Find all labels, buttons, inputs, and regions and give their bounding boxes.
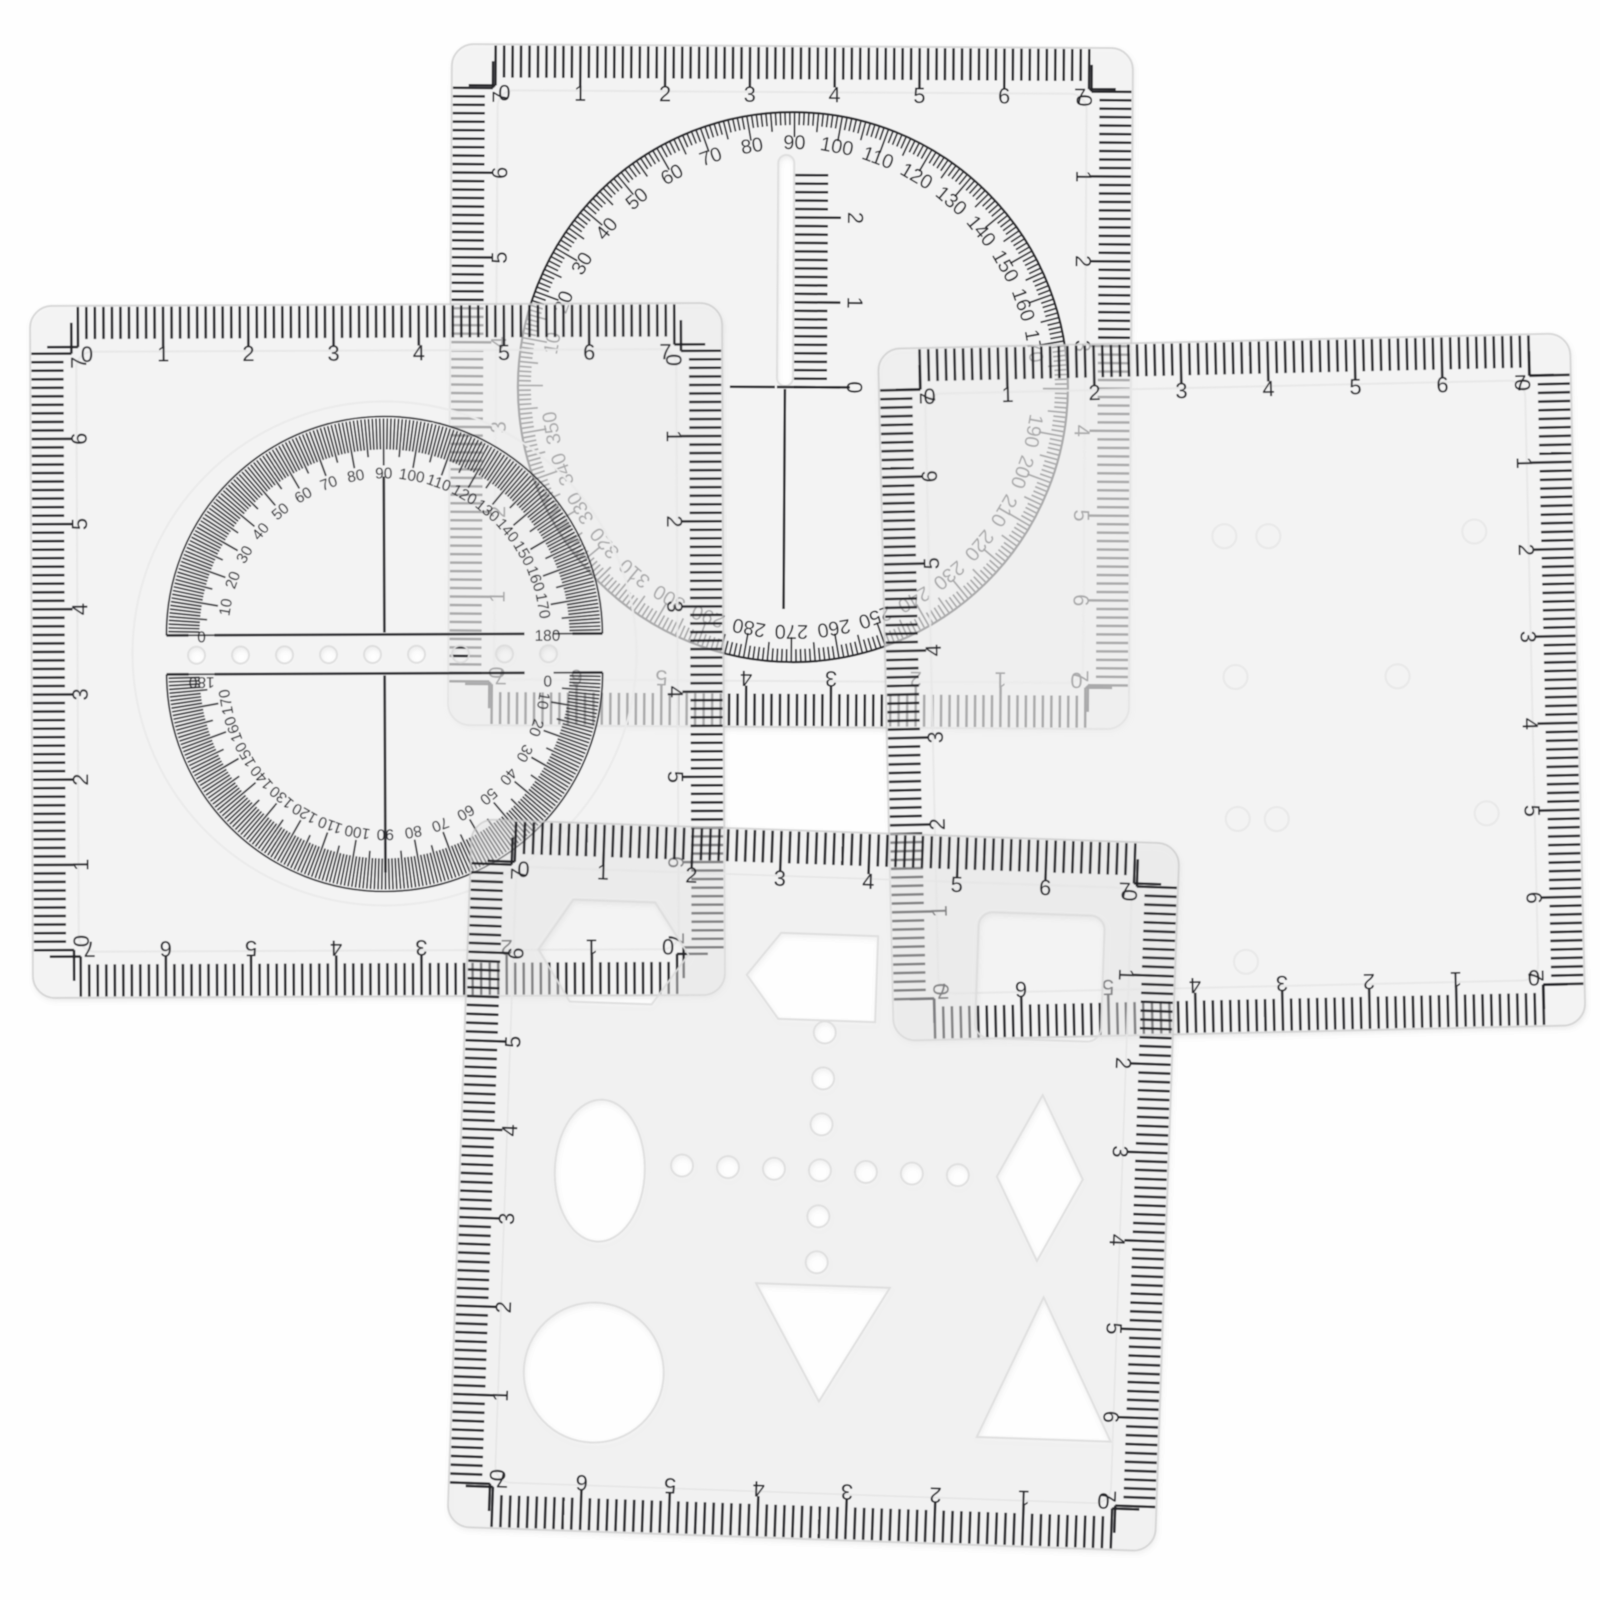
svg-text:4: 4 <box>921 644 946 657</box>
svg-text:4: 4 <box>67 603 92 615</box>
svg-text:5: 5 <box>950 872 963 897</box>
svg-text:6: 6 <box>917 470 942 483</box>
svg-text:5: 5 <box>663 1473 676 1498</box>
svg-text:4: 4 <box>1104 1233 1129 1246</box>
svg-text:3: 3 <box>825 666 837 691</box>
svg-text:6: 6 <box>575 1470 588 1495</box>
svg-text:80: 80 <box>346 467 366 487</box>
svg-text:5: 5 <box>913 83 925 108</box>
svg-text:2: 2 <box>491 1301 516 1314</box>
svg-text:0: 0 <box>543 672 552 689</box>
svg-text:1: 1 <box>1071 170 1096 182</box>
svg-text:1: 1 <box>68 859 93 871</box>
svg-text:6: 6 <box>1015 977 1028 1002</box>
svg-text:7: 7 <box>506 867 531 880</box>
svg-text:3: 3 <box>923 731 948 744</box>
svg-text:6: 6 <box>998 83 1010 108</box>
svg-text:10: 10 <box>533 691 553 711</box>
svg-text:5: 5 <box>487 251 512 263</box>
svg-text:0: 0 <box>1097 1488 1110 1513</box>
svg-text:2: 2 <box>1071 255 1096 267</box>
svg-text:2: 2 <box>1111 1057 1136 1070</box>
svg-text:2: 2 <box>242 341 254 366</box>
svg-text:0: 0 <box>1528 965 1541 990</box>
svg-text:80: 80 <box>739 134 765 159</box>
svg-text:2: 2 <box>68 773 93 785</box>
svg-text:1: 1 <box>1114 968 1139 981</box>
svg-text:80: 80 <box>403 821 423 841</box>
svg-text:4: 4 <box>752 1476 765 1501</box>
svg-text:3: 3 <box>773 866 786 891</box>
svg-text:4: 4 <box>1189 973 1202 998</box>
svg-text:5: 5 <box>67 518 92 530</box>
svg-text:2: 2 <box>662 515 687 527</box>
svg-text:180: 180 <box>534 628 560 645</box>
svg-text:3: 3 <box>744 82 756 107</box>
svg-text:6: 6 <box>487 167 512 179</box>
svg-text:2: 2 <box>843 212 868 224</box>
svg-text:4: 4 <box>862 869 875 894</box>
svg-text:6: 6 <box>160 936 172 961</box>
svg-text:1: 1 <box>574 81 586 106</box>
svg-text:6: 6 <box>503 947 528 960</box>
svg-text:270: 270 <box>775 620 809 642</box>
svg-text:180: 180 <box>188 673 214 690</box>
svg-text:7: 7 <box>915 392 940 405</box>
svg-text:4: 4 <box>1262 376 1275 401</box>
svg-text:5: 5 <box>919 557 944 570</box>
svg-text:7: 7 <box>488 91 513 103</box>
svg-text:1: 1 <box>586 935 598 960</box>
svg-text:0: 0 <box>69 935 94 947</box>
svg-text:4: 4 <box>413 340 425 365</box>
svg-text:5: 5 <box>245 936 257 961</box>
svg-text:0: 0 <box>662 934 674 959</box>
svg-text:1: 1 <box>596 859 609 884</box>
svg-text:1: 1 <box>157 341 169 366</box>
svg-text:6: 6 <box>67 433 92 445</box>
svg-text:3: 3 <box>1175 378 1188 403</box>
svg-text:5: 5 <box>1520 804 1545 817</box>
svg-text:0: 0 <box>1510 378 1535 391</box>
svg-text:3: 3 <box>840 1479 853 1504</box>
svg-text:0: 0 <box>1117 889 1142 902</box>
svg-text:2: 2 <box>1088 380 1101 405</box>
svg-text:2: 2 <box>685 862 698 887</box>
svg-text:2: 2 <box>1363 969 1376 994</box>
svg-text:3: 3 <box>415 935 427 960</box>
svg-text:5: 5 <box>498 340 510 365</box>
svg-text:0: 0 <box>485 1469 510 1482</box>
svg-text:1: 1 <box>488 1389 513 1402</box>
svg-text:0: 0 <box>661 354 686 366</box>
svg-text:5: 5 <box>1101 1322 1126 1335</box>
svg-text:1: 1 <box>1512 456 1537 469</box>
svg-text:4: 4 <box>740 666 752 691</box>
svg-text:3: 3 <box>1516 630 1541 643</box>
svg-text:2: 2 <box>1514 543 1539 556</box>
svg-text:6: 6 <box>583 340 595 365</box>
svg-text:0: 0 <box>197 629 206 646</box>
svg-text:5: 5 <box>1349 374 1362 399</box>
svg-text:0: 0 <box>1072 94 1097 106</box>
svg-text:6: 6 <box>1098 1410 1123 1423</box>
svg-text:2: 2 <box>659 81 671 106</box>
svg-text:3: 3 <box>327 341 339 366</box>
svg-text:4: 4 <box>663 686 688 698</box>
svg-text:10: 10 <box>216 597 236 617</box>
svg-text:3: 3 <box>494 1212 519 1225</box>
svg-text:1: 1 <box>1450 967 1463 992</box>
svg-text:2: 2 <box>925 818 950 831</box>
svg-text:3: 3 <box>1108 1145 1133 1158</box>
svg-text:3: 3 <box>662 600 687 612</box>
svg-text:3: 3 <box>1276 971 1289 996</box>
svg-text:1: 1 <box>662 430 687 442</box>
svg-text:4: 4 <box>1518 717 1543 730</box>
svg-text:4: 4 <box>497 1124 522 1137</box>
svg-text:3: 3 <box>68 688 93 700</box>
svg-text:1: 1 <box>842 296 867 308</box>
svg-text:1: 1 <box>1001 382 1014 407</box>
svg-text:90: 90 <box>783 132 805 154</box>
svg-text:5: 5 <box>500 1035 525 1048</box>
svg-text:4: 4 <box>330 936 342 961</box>
svg-text:2: 2 <box>929 1482 942 1507</box>
svg-text:4: 4 <box>828 82 840 107</box>
svg-text:7: 7 <box>66 356 91 368</box>
svg-text:6: 6 <box>1039 875 1052 900</box>
svg-text:6: 6 <box>1521 891 1546 904</box>
svg-text:1: 1 <box>1017 1485 1030 1510</box>
svg-text:5: 5 <box>663 771 688 783</box>
svg-text:6: 6 <box>1436 372 1449 397</box>
